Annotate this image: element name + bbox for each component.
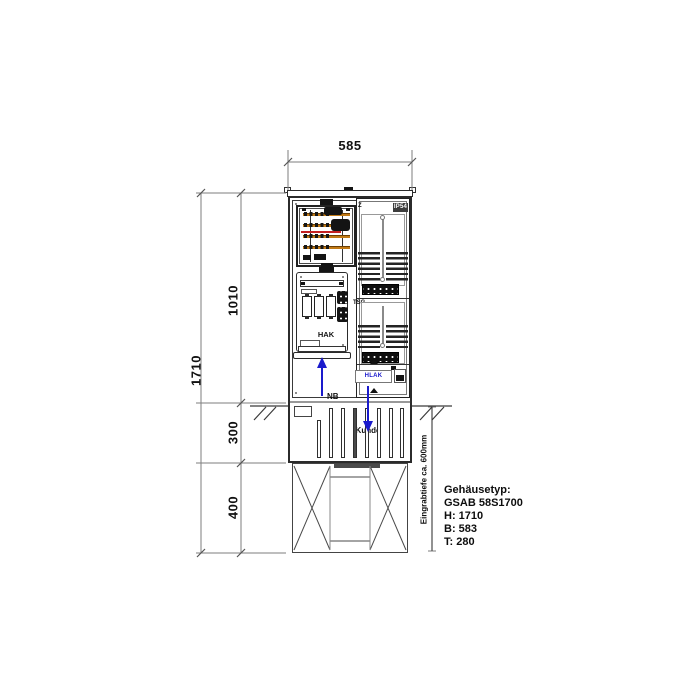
hlak-side-module-core <box>396 375 404 381</box>
dim-socket-height-label: 300 <box>226 416 241 450</box>
hak-label-plate-small <box>301 289 317 294</box>
info-line-width: B: 583 <box>444 523 523 536</box>
mount-mark-icon <box>370 388 378 393</box>
hak-fuse-cartridge <box>302 296 312 317</box>
foundation-base <box>292 463 408 553</box>
panel-divider <box>357 364 409 365</box>
enclosure-info-block: Gehäusetyp: GSAB 58S1700 H: 1710 B: 583 … <box>444 484 523 549</box>
door-screw <box>295 392 297 394</box>
foundation-top-bar <box>334 464 380 468</box>
hak-screw <box>300 276 302 278</box>
meter-field-label: Z <box>358 203 362 209</box>
vent-slots <box>386 325 408 351</box>
meter-screw-bottom <box>380 277 385 282</box>
hak-top-bar <box>300 280 344 287</box>
technical-drawing-canvas: 585 1710 1010 300 400 Eingrabtiefe ca. 6… <box>0 0 700 700</box>
grid-arrow-label: NB <box>327 392 339 401</box>
vent-slots <box>358 252 380 283</box>
hak-top-bar-cap <box>339 282 343 285</box>
socket-plate <box>294 406 312 417</box>
meter-screw-slot-upper <box>382 218 384 280</box>
fuse-handle-lower <box>331 219 350 231</box>
mount-mark-icon <box>370 359 378 364</box>
info-line-height: H: 1710 <box>444 510 523 523</box>
hak-terminal-block-lower <box>337 307 348 322</box>
socket-slat <box>389 408 393 458</box>
terminal-strip-upper <box>362 284 399 295</box>
socket-slat <box>365 408 369 458</box>
fuse-terminal-row <box>304 234 330 238</box>
fuse-box-bottom-component <box>314 254 326 260</box>
vent-slots <box>386 252 408 283</box>
fuse-terminal-row <box>304 223 330 227</box>
dim-upper-height-label: 1010 <box>226 280 241 322</box>
burial-depth-label: Eingrabtiefe ca. 600mm <box>420 424 429 536</box>
dim-total-height-label: 1710 <box>189 350 204 392</box>
hlak-label: HLAK <box>356 371 391 382</box>
terminal-strip-lower <box>362 352 399 363</box>
hak-terminal-block-upper <box>337 291 348 304</box>
socket-slat <box>400 408 404 458</box>
hlak-box: HLAK <box>355 370 392 383</box>
meter-screw-slot-lower <box>382 306 384 346</box>
ip-rating-badge: IP54 <box>393 203 408 212</box>
meter-screw-top <box>380 215 385 220</box>
socket-slat-dark <box>353 408 357 458</box>
hak-label: HAK <box>310 330 342 339</box>
info-line-depth: T: 280 <box>444 536 523 549</box>
socket-slat <box>377 408 381 458</box>
socket-slat <box>341 408 345 458</box>
socket-slat <box>329 408 333 458</box>
fuse-handle-upper <box>324 207 342 215</box>
fuse-box-bottom-component <box>303 255 311 260</box>
red-wire <box>301 231 341 233</box>
fuse-box-corner-mark <box>346 208 350 211</box>
dim-foundation-height-label: 400 <box>226 491 241 525</box>
hak-fuse-cartridge <box>326 296 336 317</box>
socket-slat <box>317 420 321 458</box>
vent-slots <box>358 325 380 351</box>
hak-base-plate <box>293 352 351 359</box>
fuse-box-corner-mark <box>302 208 306 211</box>
dim-width-label: 585 <box>328 138 372 153</box>
hak-fuse-cartridge <box>314 296 324 317</box>
meter-screw-lower <box>380 343 385 348</box>
hak-top-bar-cap <box>301 282 305 285</box>
hak-screw <box>342 276 344 278</box>
info-line-type: GSAB 58S1700 <box>444 497 523 510</box>
info-line-title: Gehäusetyp: <box>444 484 523 497</box>
fuse-terminal-row <box>304 245 330 249</box>
panel-divider <box>357 298 409 299</box>
